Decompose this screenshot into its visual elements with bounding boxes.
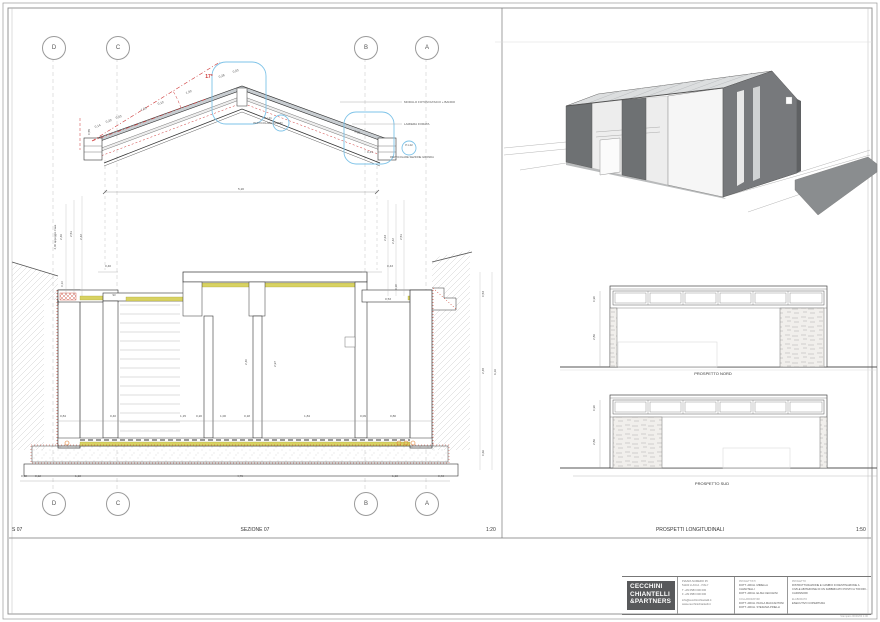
dim-label: 2,86 bbox=[592, 439, 596, 445]
dim-label: 0,85 bbox=[354, 129, 361, 135]
grid-marker-label: A bbox=[425, 45, 429, 51]
dim-label: 2,48 bbox=[481, 368, 485, 374]
dim-label: 0,03 bbox=[232, 68, 239, 74]
dim-label: 0,80 bbox=[390, 414, 396, 418]
grid-marker-label: D bbox=[52, 45, 56, 51]
grid-marker-d-top: D bbox=[42, 36, 66, 60]
grid-marker-label: B bbox=[364, 501, 368, 507]
dim-label: 0,09 bbox=[360, 414, 366, 418]
dim-label: 0,53 bbox=[481, 291, 485, 297]
elevation-north bbox=[560, 286, 877, 370]
dim-label: 0,40 bbox=[105, 264, 111, 268]
dim-label: 0,40 bbox=[110, 414, 116, 418]
dim-label: 4,76 bbox=[237, 474, 243, 478]
axonometric-view bbox=[495, 42, 877, 215]
dim-label: 0,12 bbox=[35, 474, 41, 478]
elevations-scale: 1:50 bbox=[856, 527, 866, 533]
dim-label: 0,20 bbox=[105, 118, 112, 124]
progettista: DOTT. ARCH. ELISA CECCHINI bbox=[739, 592, 784, 596]
dim-label: PARTICOLARE SEZIONE GRONDA bbox=[390, 155, 434, 159]
project-team: PROGETTISTI DOTT. ARCH. MIRELLA CHIANTEL… bbox=[735, 577, 788, 614]
dim-label: 0,13 bbox=[60, 281, 64, 287]
drawing-sheet: 17°MODULO FOTOVOLTAICO + BANDOLAMIERA FO… bbox=[0, 0, 880, 622]
dim-label: 2,40 bbox=[244, 359, 248, 365]
dim-label: 1,15 bbox=[180, 414, 186, 418]
dim-label: 2,42 bbox=[79, 234, 83, 240]
dim-label: 2,86 bbox=[592, 334, 596, 340]
firm-name-line: &PARTNERS bbox=[630, 598, 675, 606]
grid-marker-label: C bbox=[116, 501, 120, 507]
project-info: PROGETTO RISTRUTTURAZIONE E CAMBIO DI DE… bbox=[788, 577, 871, 614]
dim-label: 17° bbox=[205, 74, 213, 80]
firm-logo: CECCHINI CHIANTELLI &PARTNERS bbox=[622, 577, 678, 614]
elevation-south bbox=[560, 395, 877, 476]
grid-marker-label: C bbox=[116, 45, 120, 51]
dim-label: 6,16 bbox=[493, 369, 497, 375]
address-line: 51100 LUCCA - ITALY bbox=[682, 584, 731, 588]
dim-label: 93 bbox=[112, 293, 116, 297]
dim-label: 0,03 bbox=[115, 114, 122, 120]
section-code: S 07 bbox=[12, 527, 22, 533]
dim-label: 2,51 bbox=[69, 231, 73, 237]
dim-label: 0,18 bbox=[394, 284, 398, 290]
dim-label: 2,42 bbox=[391, 238, 395, 244]
elaborato-header: ELABORATO bbox=[792, 598, 868, 602]
dim-label: 0,43 bbox=[387, 264, 393, 268]
grid-marker-a-bottom: A bbox=[415, 492, 439, 516]
firm-name-line: CECCHINI bbox=[630, 583, 675, 591]
grid-marker-c-bottom: C bbox=[106, 492, 130, 516]
dim-label: 2,97 bbox=[273, 361, 277, 367]
address-line: www.cecchinichiantelli.it bbox=[682, 603, 731, 607]
dim-label: 0,84 bbox=[60, 414, 66, 418]
section-drawing: 17°MODULO FOTOVOLTAICO + BANDOLAMIERA FO… bbox=[0, 0, 880, 622]
grid-marker-a-top: A bbox=[415, 36, 439, 60]
dim-label: 0,38 bbox=[21, 474, 27, 478]
grid-marker-d-bottom: D bbox=[42, 492, 66, 516]
collaboratore: DOTT. ARCH. STEFANIA PINELLI bbox=[739, 606, 784, 610]
dim-label: 0,90 bbox=[592, 405, 596, 411]
dim-label: 0,66 bbox=[481, 450, 485, 456]
dim-label: 1,10 bbox=[75, 474, 81, 478]
section-scale: 1:20 bbox=[486, 527, 496, 533]
firm-address: PIAZZA NUMERO 35 51100 LUCCA - ITALY T +… bbox=[678, 577, 735, 614]
grid-marker-b-bottom: B bbox=[354, 492, 378, 516]
dim-label: 0,90 bbox=[592, 296, 596, 302]
grid-marker-c-top: C bbox=[106, 36, 130, 60]
progetto-description: RISTRUTTURAZIONE E CAMBIO DI DESTINAZION… bbox=[792, 584, 868, 596]
dim-label: PARTICOLARE COLMO bbox=[253, 121, 282, 125]
elevation-north-title: PROSPETTO NORD bbox=[694, 371, 732, 376]
dim-label: 0,20 bbox=[196, 414, 202, 418]
dim-label: 0,10 bbox=[157, 100, 164, 106]
dim-label: 0,43 bbox=[438, 474, 444, 478]
dim-label: 1,10 bbox=[392, 474, 398, 478]
dim-label: LAMIERA FORATA bbox=[404, 122, 430, 126]
grid-marker-label: D bbox=[52, 501, 56, 507]
dim-label: 2,46 bbox=[59, 234, 63, 240]
address-line: F +39 0583 000 000 bbox=[682, 593, 731, 597]
dim-label: 1,00 bbox=[140, 106, 147, 112]
dim-label: 5,20 bbox=[238, 187, 244, 191]
dim-label: 1,84 bbox=[304, 414, 310, 418]
progettista: DOTT. ARCH. MIRELLA CHIANTELLI bbox=[739, 584, 784, 592]
dim-label: 2,63 bbox=[383, 235, 387, 241]
dim-label: 0,53 bbox=[385, 297, 391, 301]
firm-name-line: CHIANTELLI bbox=[630, 591, 675, 599]
dim-label: 2,00 appoggio trave bbox=[53, 224, 57, 249]
grid-marker-b-top: B bbox=[354, 36, 378, 60]
dim-label: P.1-02 bbox=[405, 143, 413, 147]
dim-label: 0,28 bbox=[218, 73, 225, 79]
print-note: Stampato 00/00/00 1:00 bbox=[840, 615, 868, 618]
dim-label: 0,41 bbox=[367, 150, 373, 154]
dim-label: 2,51 bbox=[399, 234, 403, 240]
dim-label: MODULO FOTOVOLTAICO + BANDO bbox=[404, 100, 456, 104]
elevation-south-title: PROSPETTO SUD bbox=[695, 481, 729, 486]
dim-label: 0,14 bbox=[94, 123, 101, 129]
collaboratori-header: COLLABORATORI bbox=[739, 598, 784, 602]
dim-label: 0,17 bbox=[56, 299, 60, 305]
elaborato-description: ESECUTIVO COPERTURA bbox=[792, 602, 868, 606]
elevations-title: PROSPETTI LONGITUDINALI bbox=[656, 527, 724, 533]
dim-label: P.1-01 bbox=[264, 116, 272, 120]
leader-lines bbox=[340, 102, 402, 124]
grid-marker-label: A bbox=[425, 501, 429, 507]
lower-section bbox=[12, 196, 492, 481]
dim-label: 1,00 bbox=[220, 414, 226, 418]
dim-label: 0,18 bbox=[244, 414, 250, 418]
section-title: SEZIONE 07 bbox=[241, 527, 270, 533]
grid-marker-label: B bbox=[364, 45, 368, 51]
title-block: CECCHINI CHIANTELLI &PARTNERS PIAZZA NUM… bbox=[622, 576, 871, 615]
dim-label: 0,55 bbox=[87, 129, 91, 135]
dim-label: 1,90 bbox=[185, 89, 192, 95]
